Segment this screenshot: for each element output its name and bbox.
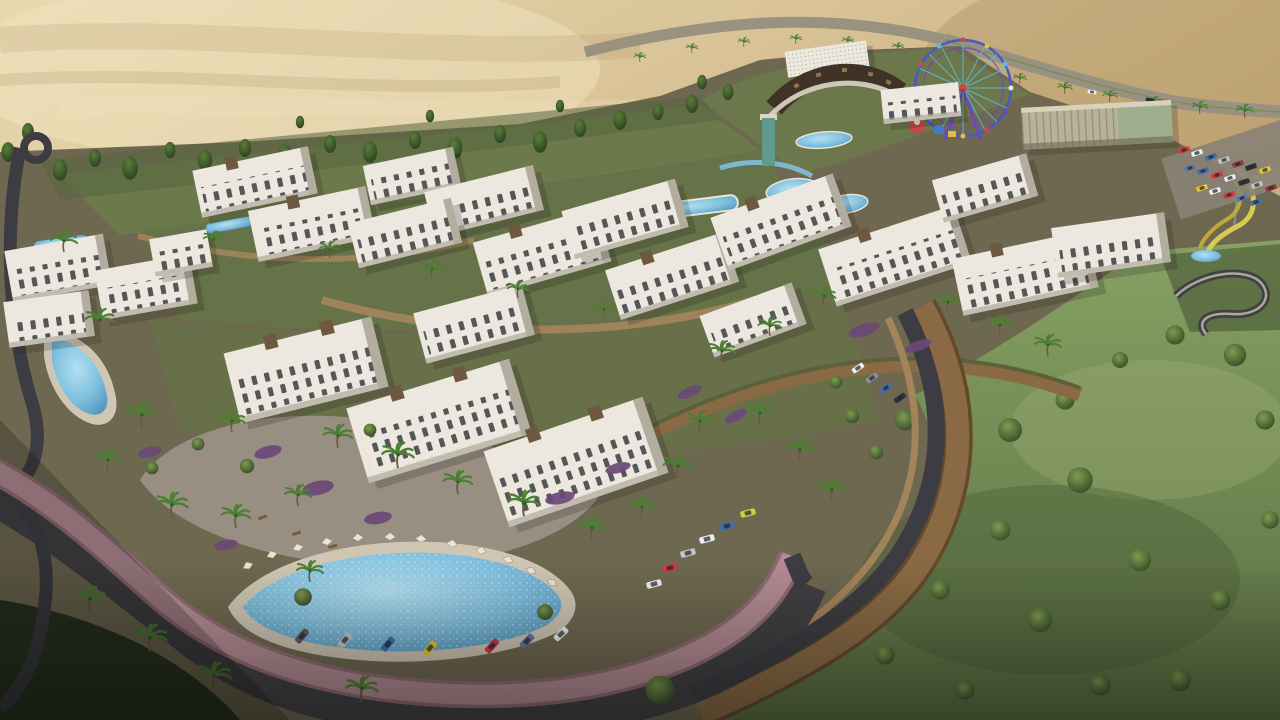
tree bbox=[697, 75, 707, 89]
tree bbox=[1261, 511, 1279, 529]
tree bbox=[1112, 352, 1128, 368]
sand-streak bbox=[0, 36, 640, 49]
apartment-building bbox=[880, 81, 968, 131]
tree bbox=[426, 110, 434, 123]
tree bbox=[239, 139, 251, 157]
aerial-rendering: Aerial 3D rendering of a hillside resort… bbox=[0, 0, 1280, 720]
tree bbox=[990, 520, 1011, 541]
tree bbox=[723, 84, 734, 100]
tree bbox=[296, 116, 304, 129]
tree bbox=[1067, 467, 1093, 493]
splash-pool bbox=[1191, 250, 1221, 262]
tree bbox=[613, 110, 626, 130]
dormer bbox=[842, 68, 847, 72]
play-structure bbox=[934, 126, 944, 134]
tree bbox=[998, 418, 1022, 442]
tree bbox=[556, 100, 564, 113]
tree bbox=[1165, 325, 1184, 344]
tree bbox=[409, 131, 421, 149]
clubhouse-building bbox=[1021, 100, 1179, 156]
tree bbox=[53, 159, 67, 181]
tree bbox=[1224, 344, 1246, 366]
tree bbox=[192, 438, 205, 451]
tree bbox=[574, 119, 586, 137]
rendering-canvas: Aerial 3D rendering of a hillside resort… bbox=[0, 0, 1280, 720]
tree bbox=[363, 141, 377, 163]
tree bbox=[653, 104, 664, 120]
glass-elevator bbox=[762, 118, 775, 166]
tree bbox=[533, 131, 547, 153]
tree bbox=[364, 424, 377, 437]
tree bbox=[122, 156, 138, 179]
tree bbox=[89, 149, 101, 167]
tree bbox=[830, 376, 843, 389]
tree bbox=[845, 409, 859, 423]
tree bbox=[165, 142, 176, 158]
tree bbox=[146, 462, 159, 475]
tree bbox=[240, 459, 254, 473]
elevator-tower bbox=[760, 114, 777, 166]
tree bbox=[686, 95, 698, 113]
tree bbox=[324, 135, 336, 153]
tree bbox=[1255, 410, 1274, 429]
tree bbox=[494, 125, 506, 143]
tree bbox=[869, 445, 883, 459]
play-structure bbox=[948, 131, 956, 137]
